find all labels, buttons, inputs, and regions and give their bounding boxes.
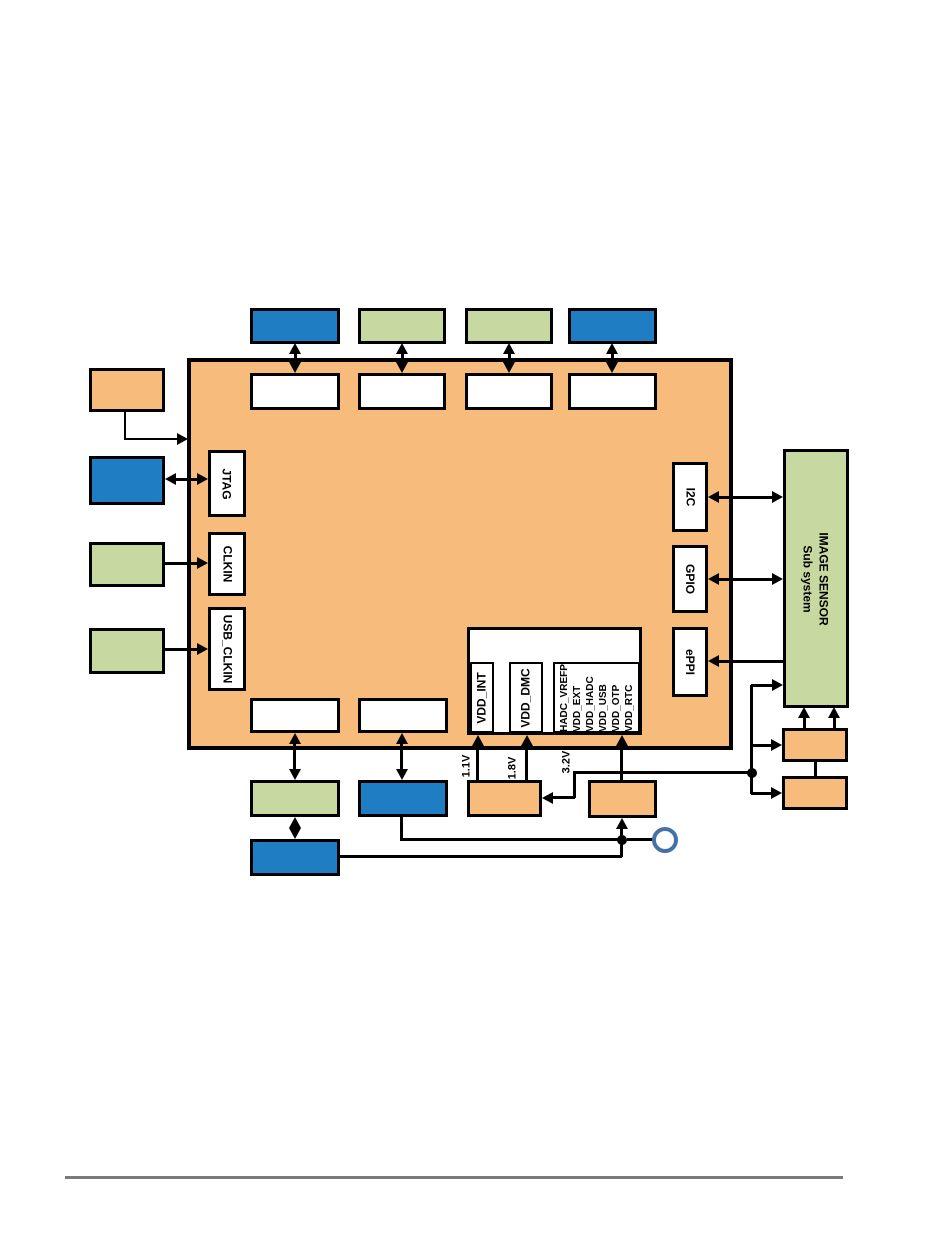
- port-gpio: GPIO: [672, 545, 708, 613]
- soc-block: [187, 358, 733, 750]
- port-box-top-3: [465, 373, 553, 410]
- arrowhead: [396, 769, 408, 780]
- arrowhead: [503, 362, 515, 373]
- arrowhead: [289, 362, 301, 373]
- arrowhead: [772, 573, 783, 585]
- connector-right-feed-branch1: [751, 684, 773, 687]
- arrowhead: [828, 707, 840, 718]
- arrowhead: [396, 362, 408, 373]
- arrowhead: [708, 573, 719, 585]
- connector-orange-elbow: [124, 438, 178, 440]
- voltage-label-1v8-text: 1.8V: [506, 757, 518, 780]
- external-box-blue-jtag: [89, 456, 165, 505]
- arrowhead: [289, 733, 301, 744]
- external-box-top-1: [250, 308, 340, 344]
- port-box-top-4: [568, 373, 657, 410]
- arrowhead: [396, 733, 408, 744]
- arrowhead: [197, 643, 208, 655]
- port-jtag-label: JTAG: [220, 468, 234, 499]
- rail-vdd-otp-label: VDD_OTP: [609, 664, 622, 732]
- external-box-top-4: [568, 308, 657, 344]
- connector-orange-elbow: [124, 410, 126, 440]
- port-box-bottom-2: [358, 698, 448, 733]
- arrowhead: [542, 792, 553, 804]
- port-jtag: JTAG: [208, 450, 246, 517]
- arrowhead: [396, 343, 408, 354]
- connector-blue2-rise: [620, 840, 623, 857]
- connector-bottom-2: [400, 741, 403, 771]
- rail-vdd-rtc-label: VDD_RTC: [622, 664, 635, 732]
- connector-reg2-top: [620, 771, 623, 781]
- connector-sensor-power-link: [814, 760, 817, 778]
- port-usb-clkin: USB_CLKIN: [208, 607, 246, 691]
- sensor-power-box-2: [782, 776, 848, 810]
- connector-3v2: [620, 745, 623, 772]
- arrowhead: [708, 491, 719, 503]
- connector-reg1-elbow: [553, 796, 575, 799]
- connector-gpio: [717, 578, 774, 581]
- image-sensor-label-line1: IMAGE SENSOR: [816, 532, 832, 625]
- connector-right-feed-branch2: [751, 744, 772, 747]
- arrowhead: [289, 817, 301, 828]
- regulator-box-2: [588, 780, 657, 818]
- arrowhead: [798, 707, 810, 718]
- connector-blue1-run: [400, 838, 622, 841]
- voltage-label-3v2-text: 3.2V: [560, 751, 572, 774]
- external-box-green-clkin: [89, 542, 165, 587]
- rail-vdd-dmc: VDD_DMC: [509, 662, 543, 733]
- port-i2c-label: I2C: [683, 488, 697, 507]
- external-box-bottom-blue-1: [358, 780, 448, 817]
- port-box-bottom-1: [250, 698, 340, 733]
- port-eppi: ePPI: [672, 627, 708, 697]
- connector-i2c: [717, 496, 774, 499]
- external-box-top-3: [465, 308, 553, 344]
- image-sensor-label-line2: Sub system: [800, 532, 816, 625]
- port-gpio-label: GPIO: [683, 564, 697, 594]
- port-box-top-1: [250, 373, 340, 410]
- external-box-top-2: [358, 308, 446, 344]
- arrowhead: [606, 343, 618, 354]
- arrowhead: [772, 679, 783, 691]
- rail-hadc-vrefp-label: HADC_VREFP: [557, 664, 570, 732]
- connector-clkin: [165, 562, 199, 565]
- connector-eppi: [717, 660, 783, 663]
- rail-vdd-dmc-label: VDD_DMC: [519, 668, 533, 727]
- arrowhead: [289, 769, 301, 780]
- arrowhead: [708, 655, 719, 667]
- port-i2c: I2C: [672, 462, 708, 532]
- sensor-power-box-1: [782, 728, 848, 762]
- image-sensor-label: IMAGE SENSOR Sub system: [800, 532, 832, 625]
- arrowhead: [606, 362, 618, 373]
- arrowhead: [165, 473, 176, 485]
- connector-1v8: [525, 745, 528, 780]
- arrowhead: [177, 433, 188, 445]
- arrowhead: [771, 739, 782, 751]
- rail-vdd-int-label: VDD_INT: [475, 672, 489, 723]
- rail-vdd-int: VDD_INT: [470, 662, 494, 733]
- connector-power-rail-horizontal: [573, 771, 752, 774]
- connector-usb-clkin: [165, 648, 199, 651]
- external-box-green-usbclkin: [89, 628, 165, 674]
- document-page: JTAG CLKIN USB_CLKIN I2C GPIO ePPI IMAGE…: [0, 0, 950, 1246]
- arrowhead: [289, 343, 301, 354]
- arrowhead: [197, 557, 208, 569]
- connector-bottom-1: [293, 741, 296, 771]
- arrowhead: [197, 473, 208, 485]
- arrowhead: [503, 343, 515, 354]
- regulator-box-1: [467, 780, 542, 817]
- port-clkin: CLKIN: [208, 532, 246, 596]
- connector-blue1-drop: [400, 815, 403, 840]
- port-eppi-label: ePPI: [683, 649, 697, 675]
- image-sensor-block: IMAGE SENSOR Sub system: [783, 449, 849, 708]
- external-box-orange-left: [89, 368, 165, 412]
- voltage-label-1v1-text: 1.1V: [460, 755, 472, 778]
- external-box-bottom-blue-2: [250, 839, 340, 876]
- connector-blue2-run: [340, 855, 622, 858]
- rail-group-labels: HADC_VREFP VDD_EXT VDD_HADC VDD_USB VDD_…: [557, 664, 635, 732]
- connector-terminal: [627, 838, 653, 841]
- footer-rule: [65, 1176, 843, 1179]
- port-usb-clkin-label: USB_CLKIN: [220, 615, 234, 684]
- rail-vdd-hadc-label: VDD_HADC: [583, 664, 596, 732]
- rail-group: HADC_VREFP VDD_EXT VDD_HADC VDD_USB VDD_…: [553, 662, 640, 733]
- arrowhead: [289, 828, 301, 839]
- connector-right-feed-branch3: [751, 792, 772, 795]
- rail-vdd-usb-label: VDD_USB: [596, 664, 609, 732]
- port-box-top-2: [358, 373, 446, 410]
- net-terminal-circle: [652, 827, 678, 853]
- arrowhead: [772, 491, 783, 503]
- rail-vdd-ext-label: VDD_EXT: [570, 664, 583, 732]
- arrowhead: [771, 787, 782, 799]
- external-box-bottom-green: [250, 780, 340, 817]
- port-clkin-label: CLKIN: [220, 546, 234, 583]
- arrowhead: [616, 818, 628, 829]
- connector-reg1-elbow: [573, 771, 576, 798]
